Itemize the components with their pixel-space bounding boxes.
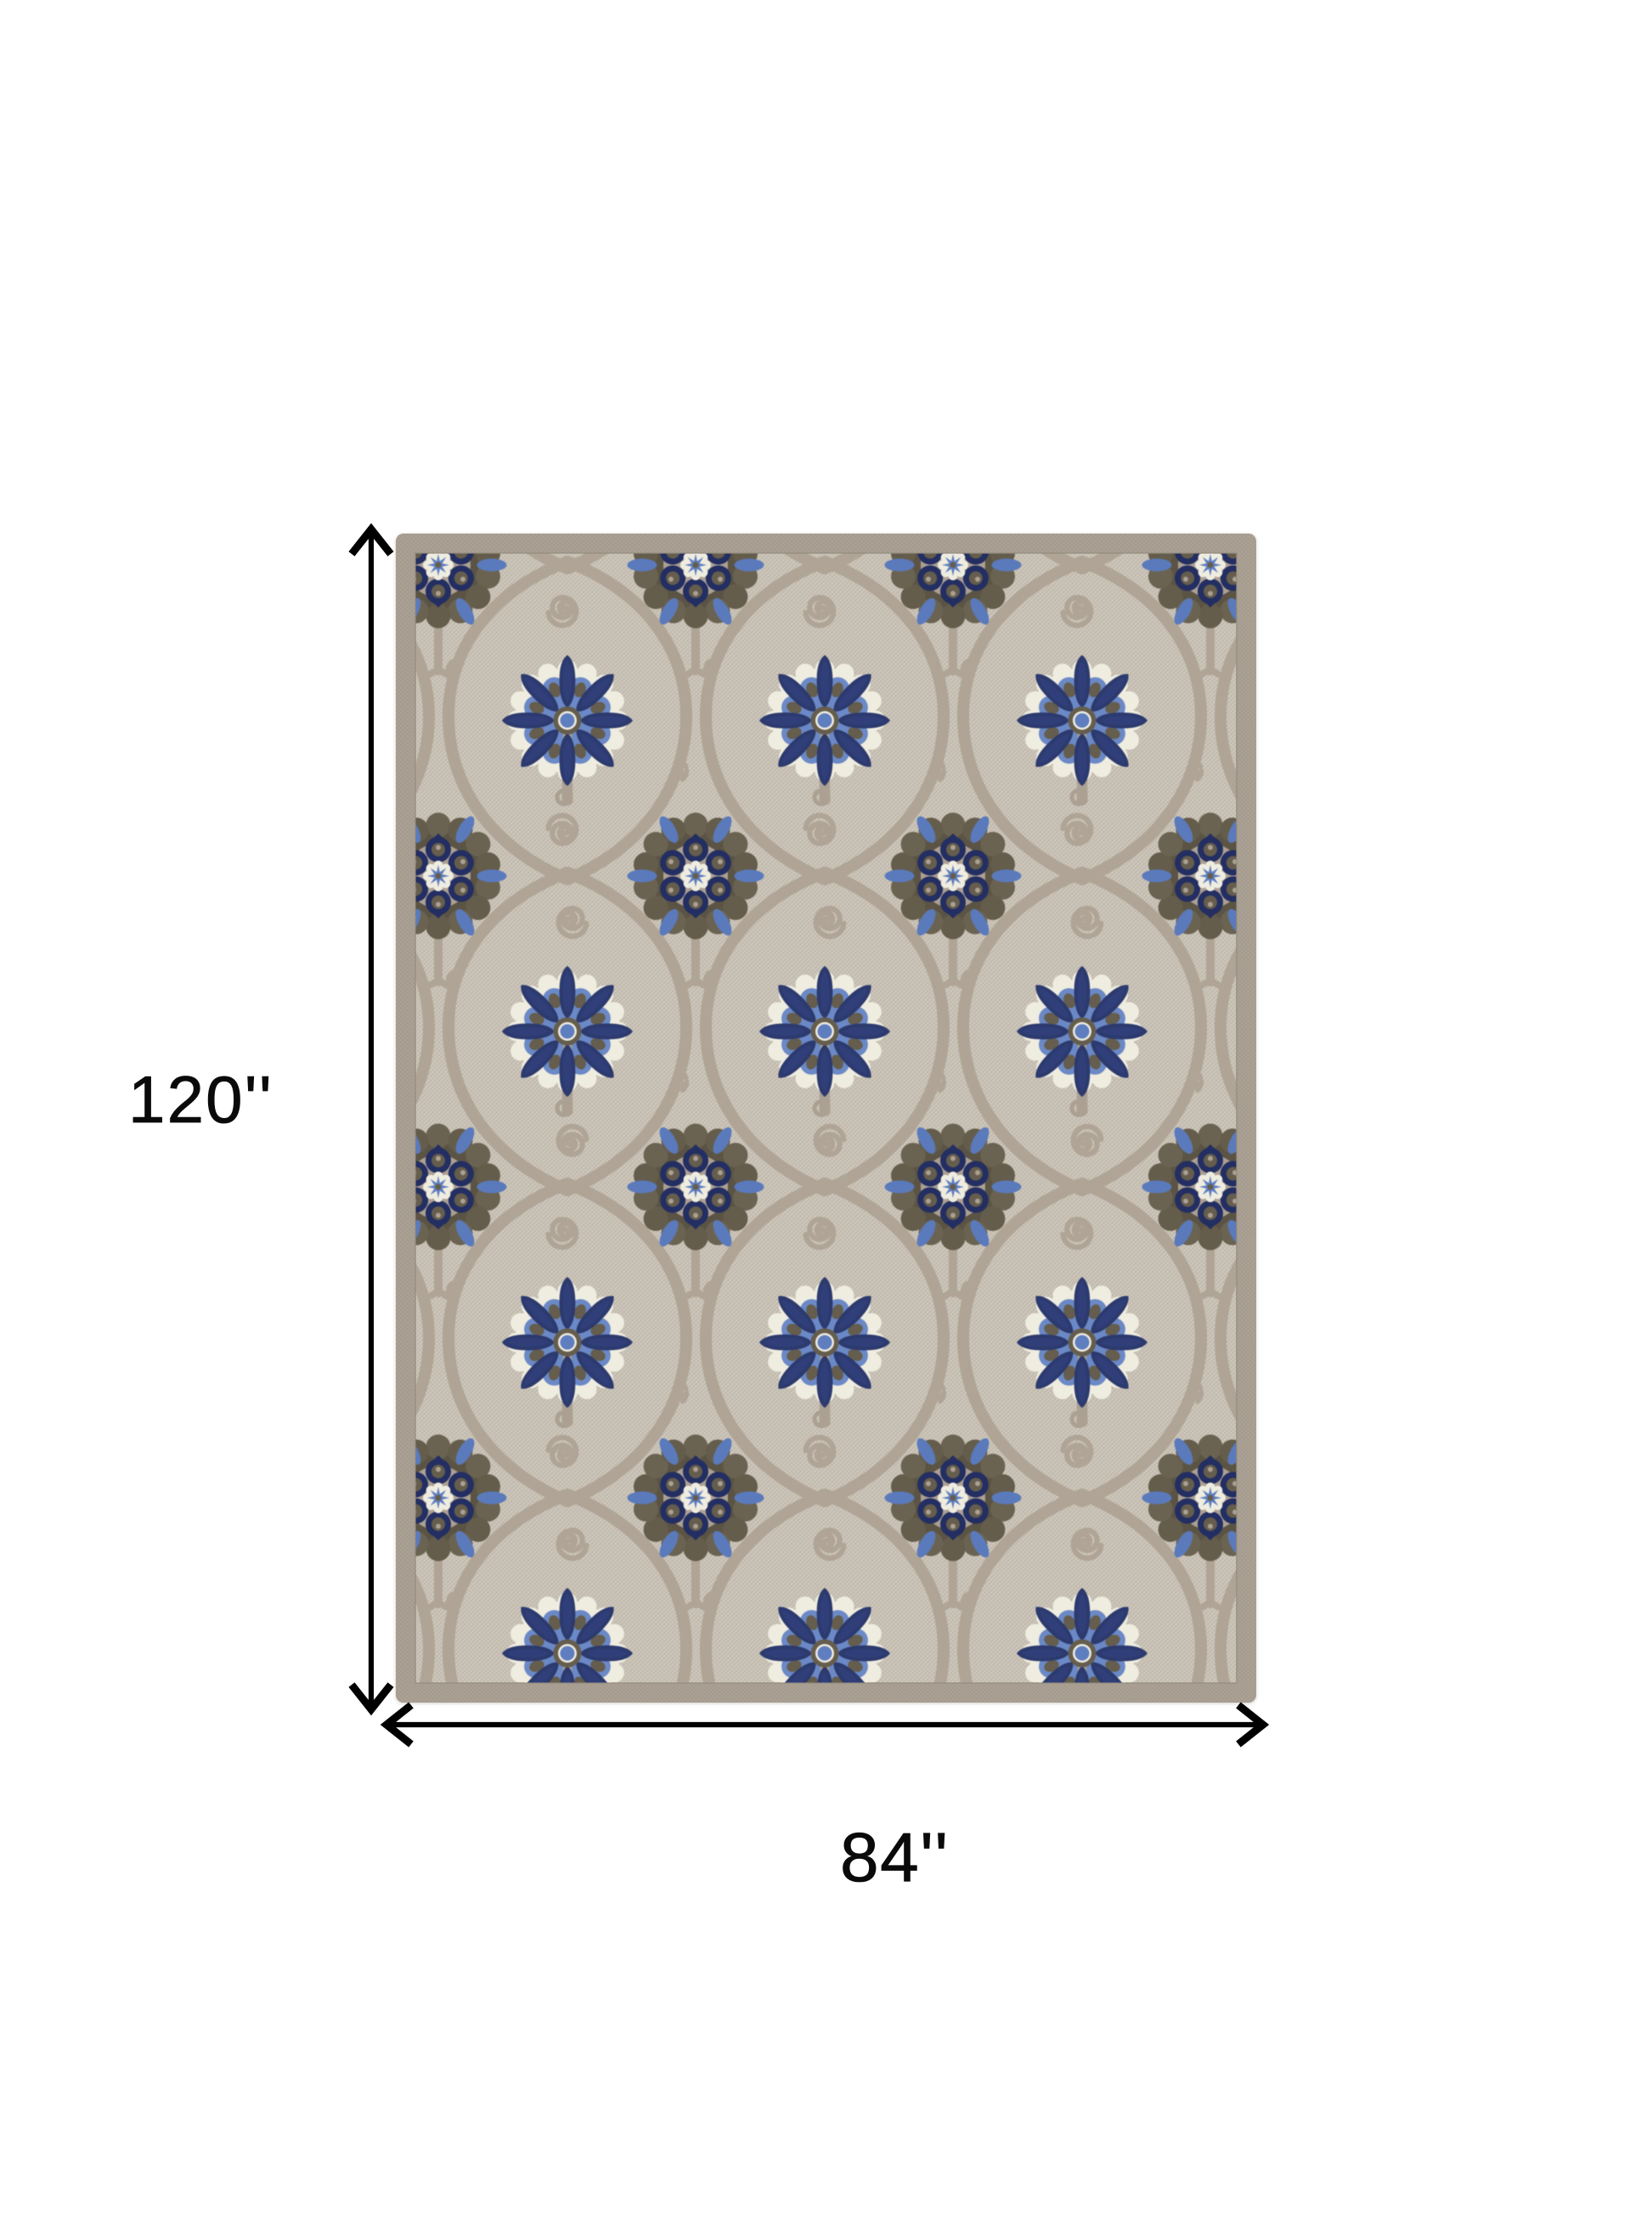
svg-text:84'': 84'' (840, 1819, 950, 1896)
svg-text:120'': 120'' (128, 1062, 273, 1137)
